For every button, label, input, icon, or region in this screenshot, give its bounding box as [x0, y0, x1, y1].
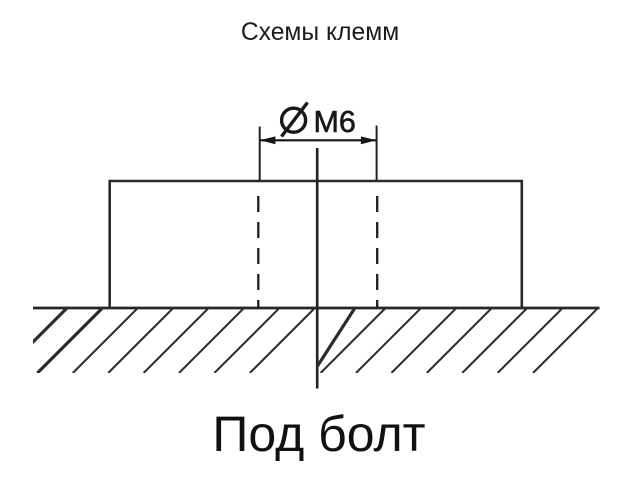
svg-text:Под болт: Под болт [212, 406, 425, 462]
svg-text:M6: M6 [314, 105, 356, 139]
svg-text:Схемы клемм: Схемы клемм [241, 19, 399, 46]
